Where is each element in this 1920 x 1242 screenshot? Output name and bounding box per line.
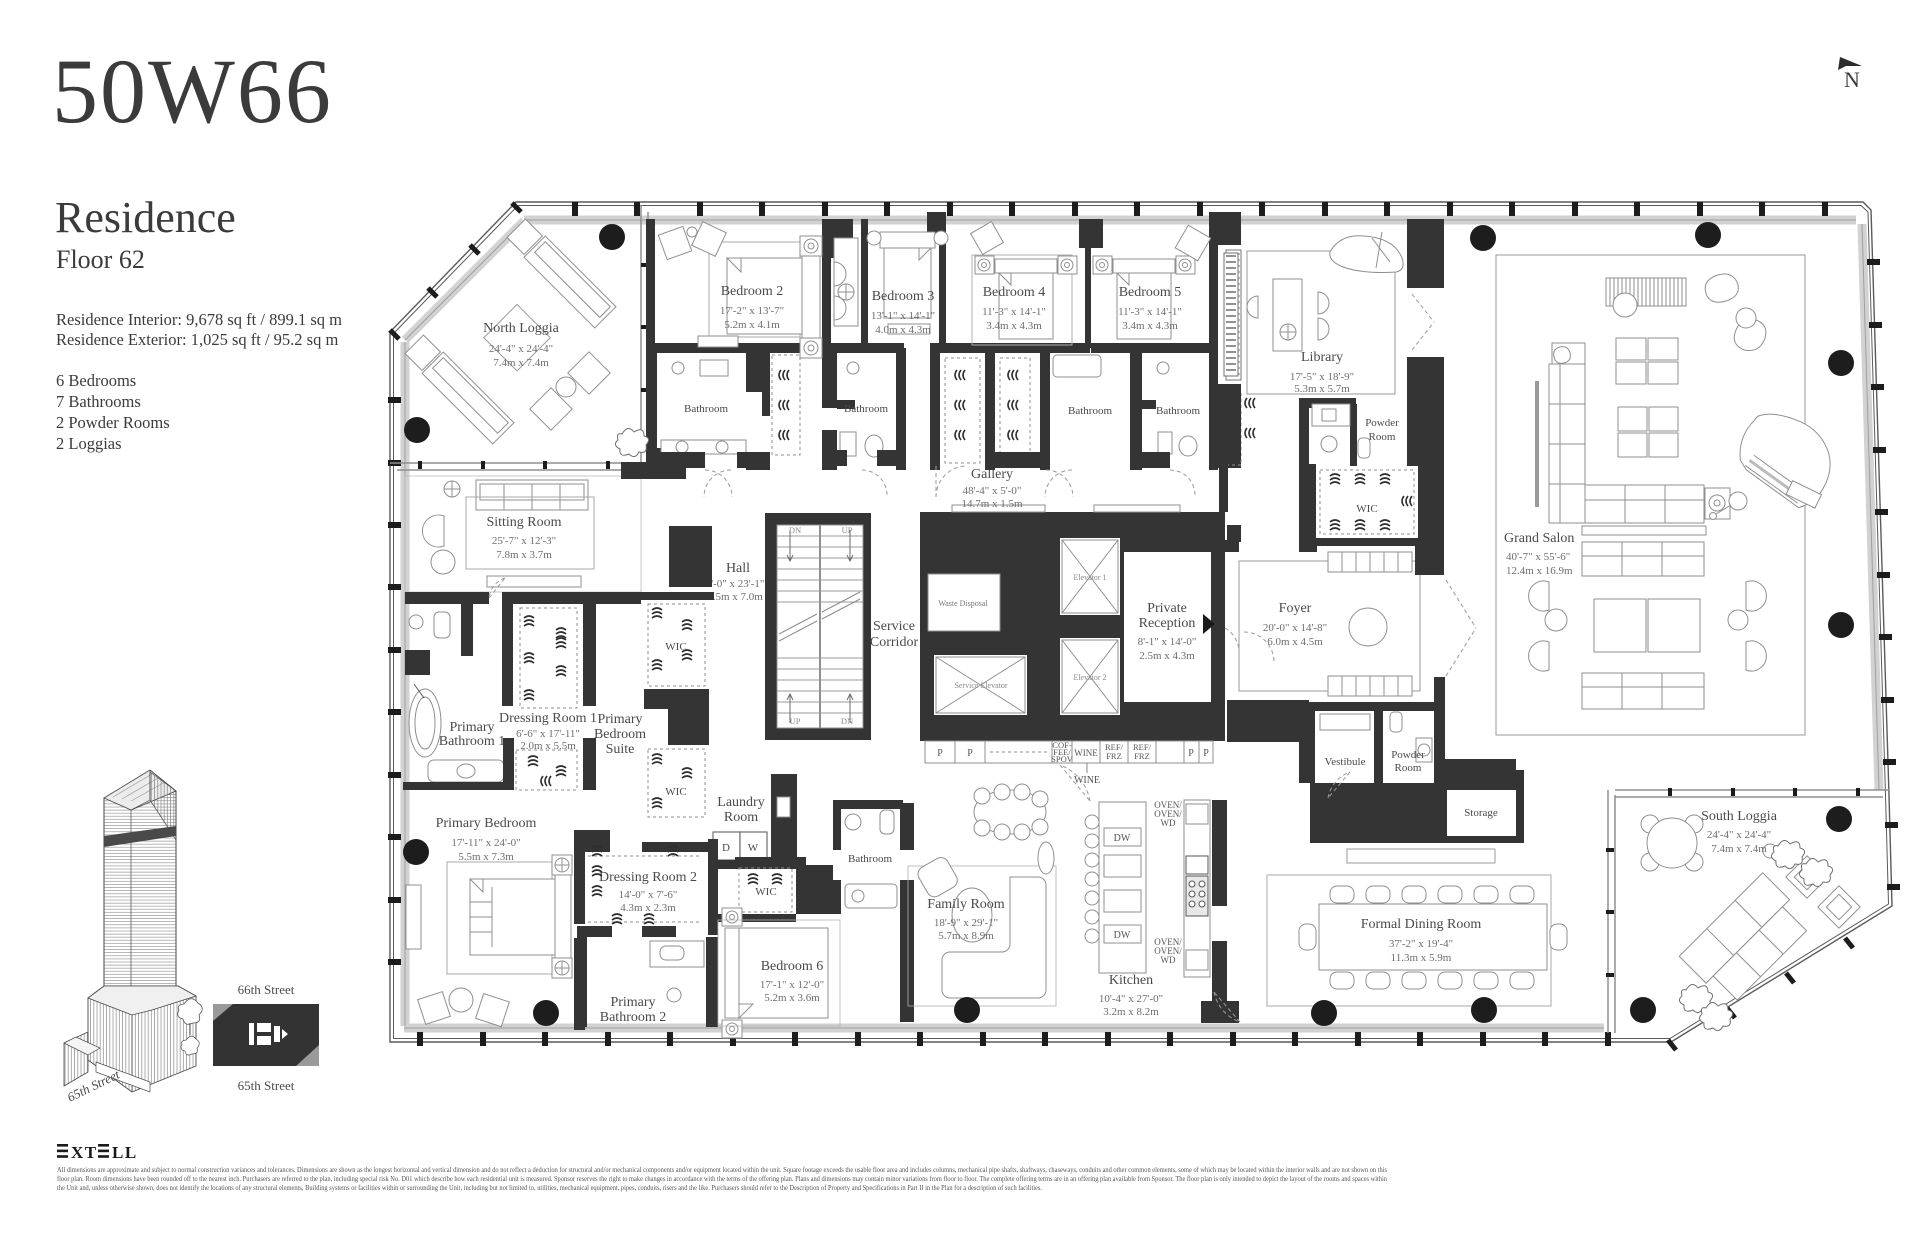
svg-text:7.4m x 7.4m: 7.4m x 7.4m [1711,843,1767,855]
svg-text:4.0m x 4.3m: 4.0m x 4.3m [875,324,931,336]
svg-text:Dressing Room 1: Dressing Room 1 [499,711,597,726]
svg-text:4.3m x 2.3m: 4.3m x 2.3m [620,902,676,914]
svg-text:7.4m x 7.4m: 7.4m x 7.4m [493,357,549,369]
svg-text:Waste Disposal: Waste Disposal [938,599,988,608]
svg-text:5.3m x 5.7m: 5.3m x 5.7m [1294,383,1350,395]
svg-text:7.8m x 3.7m: 7.8m x 3.7m [496,549,552,561]
svg-text:WIC: WIC [665,641,686,653]
svg-text:Bedroom 6: Bedroom 6 [761,959,824,974]
svg-text:10'-4" x 27'-0": 10'-4" x 27'-0" [1099,993,1163,1005]
svg-text:WIC: WIC [665,786,686,798]
svg-text:Hall: Hall [726,561,750,576]
svg-text:Bathroom: Bathroom [1156,405,1200,417]
svg-text:P: P [1203,748,1209,759]
svg-text:Foyer: Foyer [1279,601,1312,616]
svg-text:66th Street: 66th Street [238,982,295,997]
svg-text:11.3m x 5.9m: 11.3m x 5.9m [1391,952,1452,964]
svg-text:65th Street: 65th Street [238,1078,295,1093]
svg-text:All dimensions are approximate: All dimensions are approximate and subje… [57,1165,1387,1174]
svg-text:Residence Exterior: 1,025 sq f: Residence Exterior: 1,025 sq ft / 95.2 s… [56,330,338,349]
svg-text:20'-0" x 14'-8": 20'-0" x 14'-8" [1263,622,1327,634]
svg-text:Dressing Room 2: Dressing Room 2 [599,870,697,885]
svg-text:Primary: Primary [597,712,642,727]
svg-text:Bathroom: Bathroom [848,853,892,865]
svg-text:N: N [1844,67,1860,92]
svg-text:3.2m x 8.2m: 3.2m x 8.2m [1103,1006,1159,1018]
svg-text:7 Bathrooms: 7 Bathrooms [56,392,141,411]
svg-text:Family Room: Family Room [927,897,1005,912]
svg-text:40'-7" x 55'-6": 40'-7" x 55'-6" [1506,551,1570,563]
svg-text:UP: UP [790,716,801,726]
svg-text:Primary: Primary [610,995,655,1010]
svg-text:LL: LL [112,1143,138,1162]
svg-text:Bedroom 2: Bedroom 2 [721,284,784,299]
svg-text:Room: Room [1395,762,1422,774]
svg-text:14.7m x 1.5m: 14.7m x 1.5m [961,498,1023,510]
svg-text:D: D [722,842,730,854]
svg-text:WINE: WINE [1074,775,1100,786]
svg-text:17'-5" x 18'-9": 17'-5" x 18'-9" [1290,371,1354,383]
svg-text:11'-3" x 14'-1": 11'-3" x 14'-1" [1118,306,1182,318]
svg-text:Bedroom 4: Bedroom 4 [983,285,1046,300]
svg-text:5.2m x 3.6m: 5.2m x 3.6m [764,992,820,1004]
svg-text:37'-2" x 19'-4": 37'-2" x 19'-4" [1389,938,1453,950]
svg-text:14'-0" x 7'-6": 14'-0" x 7'-6" [619,889,678,901]
svg-text:Sitting Room: Sitting Room [486,515,561,530]
svg-text:Residence: Residence [55,193,236,242]
svg-text:DN: DN [841,716,853,726]
svg-text:24'-4" x 24'-4": 24'-4" x 24'-4" [1707,829,1771,841]
svg-text:Library: Library [1301,350,1343,365]
svg-text:XT: XT [71,1143,98,1162]
svg-text:Kitchen: Kitchen [1109,973,1153,988]
svg-text:Elevator 2: Elevator 2 [1073,673,1106,682]
svg-text:5.7m x 8.9m: 5.7m x 8.9m [938,930,994,942]
svg-text:Formal Dining Room: Formal Dining Room [1361,917,1482,932]
svg-text:Service Elevator: Service Elevator [954,681,1007,690]
svg-text:Primary Bedroom: Primary Bedroom [436,816,537,831]
svg-text:17'-11" x 24'-0": 17'-11" x 24'-0" [451,837,520,849]
svg-text:18'-9" x 29'-1": 18'-9" x 29'-1" [934,917,998,929]
svg-text:South Loggia: South Loggia [1701,809,1778,824]
svg-text:Vestibule: Vestibule [1325,756,1366,768]
svg-text:North Loggia: North Loggia [483,321,560,336]
svg-text:8'-1" x 14'-0": 8'-1" x 14'-0" [1138,636,1197,648]
svg-text:Floor 62: Floor 62 [56,245,145,274]
svg-text:Service: Service [873,619,915,634]
svg-text:Reception: Reception [1139,616,1196,631]
svg-text:Elevator 1: Elevator 1 [1073,573,1106,582]
svg-text:50W66: 50W66 [52,40,333,142]
svg-text:Private: Private [1147,601,1187,616]
svg-text:DW: DW [1114,930,1131,941]
svg-text:2.5m x 4.3m: 2.5m x 4.3m [1139,650,1195,662]
svg-text:DW: DW [1114,833,1131,844]
svg-text:DN: DN [789,525,801,535]
svg-text:Suite: Suite [606,742,635,757]
svg-text:6.0m x 4.5m: 6.0m x 4.5m [1267,636,1323,648]
svg-text:UP: UP [842,525,853,535]
svg-text:W: W [748,842,759,854]
svg-text:12.4m x 16.9m: 12.4m x 16.9m [1506,565,1573,577]
svg-text:P: P [937,748,943,759]
svg-text:WIC: WIC [755,886,776,898]
svg-text:24'-4" x 24'-4": 24'-4" x 24'-4" [489,343,553,355]
svg-text:6'-6" x 17'-11": 6'-6" x 17'-11" [516,728,580,740]
svg-text:48'-4" x 5'-0": 48'-4" x 5'-0" [963,485,1022,497]
svg-text:Bathroom: Bathroom [684,403,728,415]
svg-text:Storage: Storage [1464,807,1498,819]
svg-text:WIC: WIC [1356,503,1377,515]
svg-text:3.4m x 4.3m: 3.4m x 4.3m [986,320,1042,332]
svg-text:6 Bedrooms: 6 Bedrooms [56,371,136,390]
svg-text:P: P [967,748,973,759]
svg-text:Powder: Powder [1365,417,1399,429]
svg-text:Laundry: Laundry [717,795,764,810]
svg-text:3.4m x 4.3m: 3.4m x 4.3m [1122,320,1178,332]
svg-text:WD: WD [1161,955,1176,965]
svg-text:Grand Salon: Grand Salon [1504,531,1574,546]
svg-text:WD: WD [1161,818,1176,828]
svg-text:2 Powder Rooms: 2 Powder Rooms [56,413,170,432]
svg-text:5'-0" x 23'-1": 5'-0" x 23'-1" [706,578,765,590]
svg-text:17'-2" x 13'-7": 17'-2" x 13'-7" [720,305,784,317]
svg-text:Bathroom: Bathroom [844,403,888,415]
svg-text:11'-3" x 14'-1": 11'-3" x 14'-1" [982,306,1046,318]
svg-text:5.2m x 4.1m: 5.2m x 4.1m [724,319,780,331]
svg-text:Bedroom 3: Bedroom 3 [872,289,935,304]
svg-text:5.5m x 7.3m: 5.5m x 7.3m [458,851,514,863]
svg-text:FRZ: FRZ [1134,751,1150,761]
svg-text:13'-1" x 14'-1": 13'-1" x 14'-1" [871,310,935,322]
svg-text:Bedroom 5: Bedroom 5 [1119,285,1182,300]
svg-text:floor plan. Room dimensions ha: floor plan. Room dimensions have been ro… [57,1174,1387,1183]
svg-text:Bathroom 2: Bathroom 2 [600,1010,667,1025]
svg-text:Room: Room [1369,431,1396,443]
svg-text:Bathroom: Bathroom [1068,405,1112,417]
svg-text:1.5m x 7.0m: 1.5m x 7.0m [707,591,763,603]
svg-text:Powder: Powder [1391,749,1425,761]
svg-text:the Unit and, unless otherwise: the Unit and, unless otherwise shown, do… [57,1183,1042,1192]
svg-text:FRZ: FRZ [1106,751,1122,761]
svg-text:Room: Room [724,810,758,825]
svg-text:2 Loggias: 2 Loggias [56,434,122,453]
svg-text:Bathroom 1: Bathroom 1 [439,734,506,749]
svg-text:Bedroom: Bedroom [594,727,646,742]
svg-text:Residence Interior: 9,678 sq f: Residence Interior: 9,678 sq ft / 899.1 … [56,310,342,329]
svg-text:Corridor: Corridor [870,635,919,650]
svg-text:SPOV: SPOV [1051,754,1074,764]
svg-text:Primary: Primary [449,720,494,735]
svg-text:17'-1" x 12'-0": 17'-1" x 12'-0" [760,979,824,991]
svg-text:WINE: WINE [1074,748,1098,758]
svg-text:P: P [1188,748,1194,759]
svg-text:25'-7" x 12'-3": 25'-7" x 12'-3" [492,535,556,547]
